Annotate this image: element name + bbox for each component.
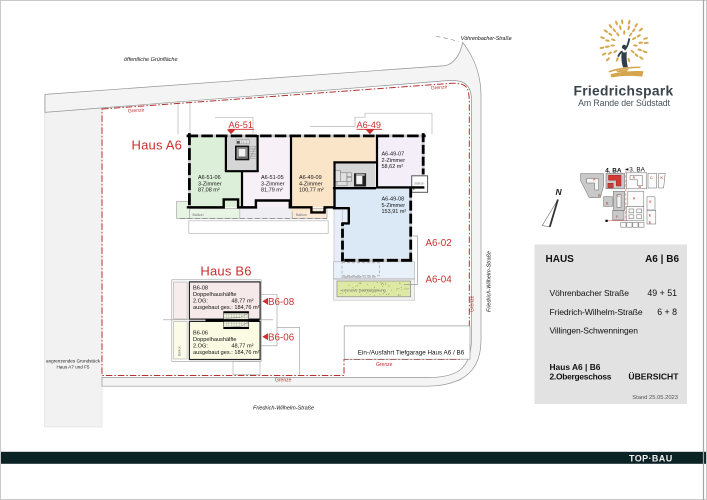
svg-text:3-Zimmer: 3-Zimmer bbox=[261, 181, 285, 187]
svg-text:ausgebaut ges.: 184,76 m²: ausgebaut ges.: 184,76 m² bbox=[193, 350, 260, 356]
svg-text:Doppelhaushälfte: Doppelhaushälfte bbox=[193, 292, 237, 298]
svg-text:Dachterrasse 37,05 m²: Dachterrasse 37,05 m² bbox=[342, 275, 377, 279]
svg-text:B6-08: B6-08 bbox=[193, 286, 208, 292]
svg-text:2-Zimmer: 2-Zimmer bbox=[382, 158, 406, 164]
svg-text:Friedrich-Wilhelm-Straße: Friedrich-Wilhelm-Straße bbox=[487, 251, 493, 312]
svg-text:58,62 m²: 58,62 m² bbox=[382, 164, 404, 170]
svg-text:3. BA: 3. BA bbox=[629, 166, 645, 173]
svg-text:87,08 m²: 87,08 m² bbox=[198, 188, 220, 194]
svg-text:Grenze: Grenze bbox=[128, 107, 145, 114]
svg-text:ausgebaut ges.: 184,76 m²: ausgebaut ges.: 184,76 m² bbox=[193, 305, 260, 311]
svg-text:Doppelhaushälfte: Doppelhaushälfte bbox=[193, 337, 237, 343]
svg-text:Balkon: Balkon bbox=[415, 182, 425, 186]
svg-text:Haus B6: Haus B6 bbox=[200, 263, 251, 278]
svg-text:Friedrich-Wilhelm-Straße: Friedrich-Wilhelm-Straße bbox=[253, 406, 314, 412]
svg-text:Haus A6 | B6: Haus A6 | B6 bbox=[550, 362, 601, 372]
svg-text:C: C bbox=[650, 176, 653, 180]
svg-text:6 + 8: 6 + 8 bbox=[657, 307, 677, 317]
svg-text:100,77 m²: 100,77 m² bbox=[299, 188, 324, 194]
svg-text:Villingen-Schwenningen: Villingen-Schwenningen bbox=[550, 326, 639, 336]
svg-text:B: B bbox=[598, 194, 601, 198]
svg-text:4. BA: 4. BA bbox=[605, 167, 622, 174]
svg-text:Balkon: Balkon bbox=[296, 213, 307, 217]
svg-text:A6-49: A6-49 bbox=[357, 120, 382, 130]
svg-text:81,79 m²: 81,79 m² bbox=[261, 188, 283, 194]
svg-text:Grenze: Grenze bbox=[275, 378, 292, 384]
svg-text:A6-51-06: A6-51-06 bbox=[198, 175, 221, 181]
svg-text:Am Rande der Südstadt: Am Rande der Südstadt bbox=[578, 98, 670, 108]
svg-text:3-Zimmer: 3-Zimmer bbox=[198, 181, 222, 187]
svg-text:A6-51: A6-51 bbox=[229, 120, 254, 130]
svg-text:4-Zimmer: 4-Zimmer bbox=[299, 181, 323, 187]
svg-text:Balkon: Balkon bbox=[193, 213, 204, 217]
svg-text:Vöhrenbacher Straße: Vöhrenbacher Straße bbox=[550, 288, 630, 298]
svg-text:Grenze: Grenze bbox=[376, 362, 393, 368]
svg-text:Friedrichspark: Friedrichspark bbox=[573, 83, 673, 98]
svg-text:HAUS: HAUS bbox=[546, 254, 575, 265]
svg-text:B: B bbox=[606, 202, 609, 206]
svg-text:Haus A6: Haus A6 bbox=[132, 137, 183, 152]
svg-text:2.OG:: 2.OG: bbox=[193, 344, 208, 350]
svg-text:Grenze: Grenze bbox=[470, 295, 476, 312]
svg-text:öffentliche Grünfläche: öffentliche Grünfläche bbox=[124, 57, 178, 63]
svg-text:B6-06: B6-06 bbox=[193, 331, 208, 337]
svg-text:49 + 51: 49 + 51 bbox=[647, 288, 677, 298]
svg-text:TOP·BAU: TOP·BAU bbox=[629, 453, 673, 463]
svg-text:A: A bbox=[633, 176, 636, 180]
svg-text:A6 | B6: A6 | B6 bbox=[645, 254, 679, 265]
svg-text:Balkon: Balkon bbox=[178, 346, 182, 356]
svg-text:ÜBERSICHT: ÜBERSICHT bbox=[628, 372, 679, 382]
svg-text:48,77 m²: 48,77 m² bbox=[231, 344, 253, 350]
svg-text:A6-02: A6-02 bbox=[426, 238, 452, 249]
svg-text:N: N bbox=[556, 187, 563, 197]
svg-text:B: B bbox=[639, 185, 642, 189]
svg-text:48,77 m²: 48,77 m² bbox=[231, 299, 253, 305]
svg-text:extensive Dachbegrünung: extensive Dachbegrünung bbox=[342, 289, 386, 293]
svg-text:A: A bbox=[593, 178, 596, 182]
svg-text:A6-51-05: A6-51-05 bbox=[261, 175, 284, 181]
svg-text:Vöhrenbacher-Straße: Vöhrenbacher-Straße bbox=[461, 36, 512, 42]
svg-text:2.OG:: 2.OG: bbox=[193, 299, 208, 305]
svg-text:angrenzendes Grundstück: angrenzendes Grundstück bbox=[46, 359, 101, 364]
svg-text:2.Obergeschoss: 2.Obergeschoss bbox=[550, 372, 612, 382]
svg-text:A6-49-09: A6-49-09 bbox=[299, 175, 322, 181]
svg-text:Ein-/Ausfahrt Tiefgarage Haus: Ein-/Ausfahrt Tiefgarage Haus A6 / B6 bbox=[358, 350, 465, 357]
svg-text:A6-49-07: A6-49-07 bbox=[382, 152, 405, 158]
svg-text:C: C bbox=[617, 194, 620, 198]
svg-text:Friedrich-Wilhelm-Straße: Friedrich-Wilhelm-Straße bbox=[550, 307, 643, 317]
svg-text:B6-06: B6-06 bbox=[268, 332, 295, 343]
svg-text:5-Zimmer: 5-Zimmer bbox=[382, 203, 406, 209]
svg-text:Stand 25.05.2023: Stand 25.05.2023 bbox=[632, 395, 678, 401]
svg-text:K: K bbox=[660, 176, 663, 180]
svg-text:A6-49-08: A6-49-08 bbox=[382, 197, 405, 203]
svg-text:153,91 m²: 153,91 m² bbox=[382, 209, 407, 215]
svg-text:A6-04: A6-04 bbox=[426, 275, 453, 286]
svg-text:B6-08: B6-08 bbox=[268, 297, 295, 308]
svg-text:A: A bbox=[633, 197, 636, 201]
svg-text:Haus A7 und F5: Haus A7 und F5 bbox=[57, 365, 90, 370]
